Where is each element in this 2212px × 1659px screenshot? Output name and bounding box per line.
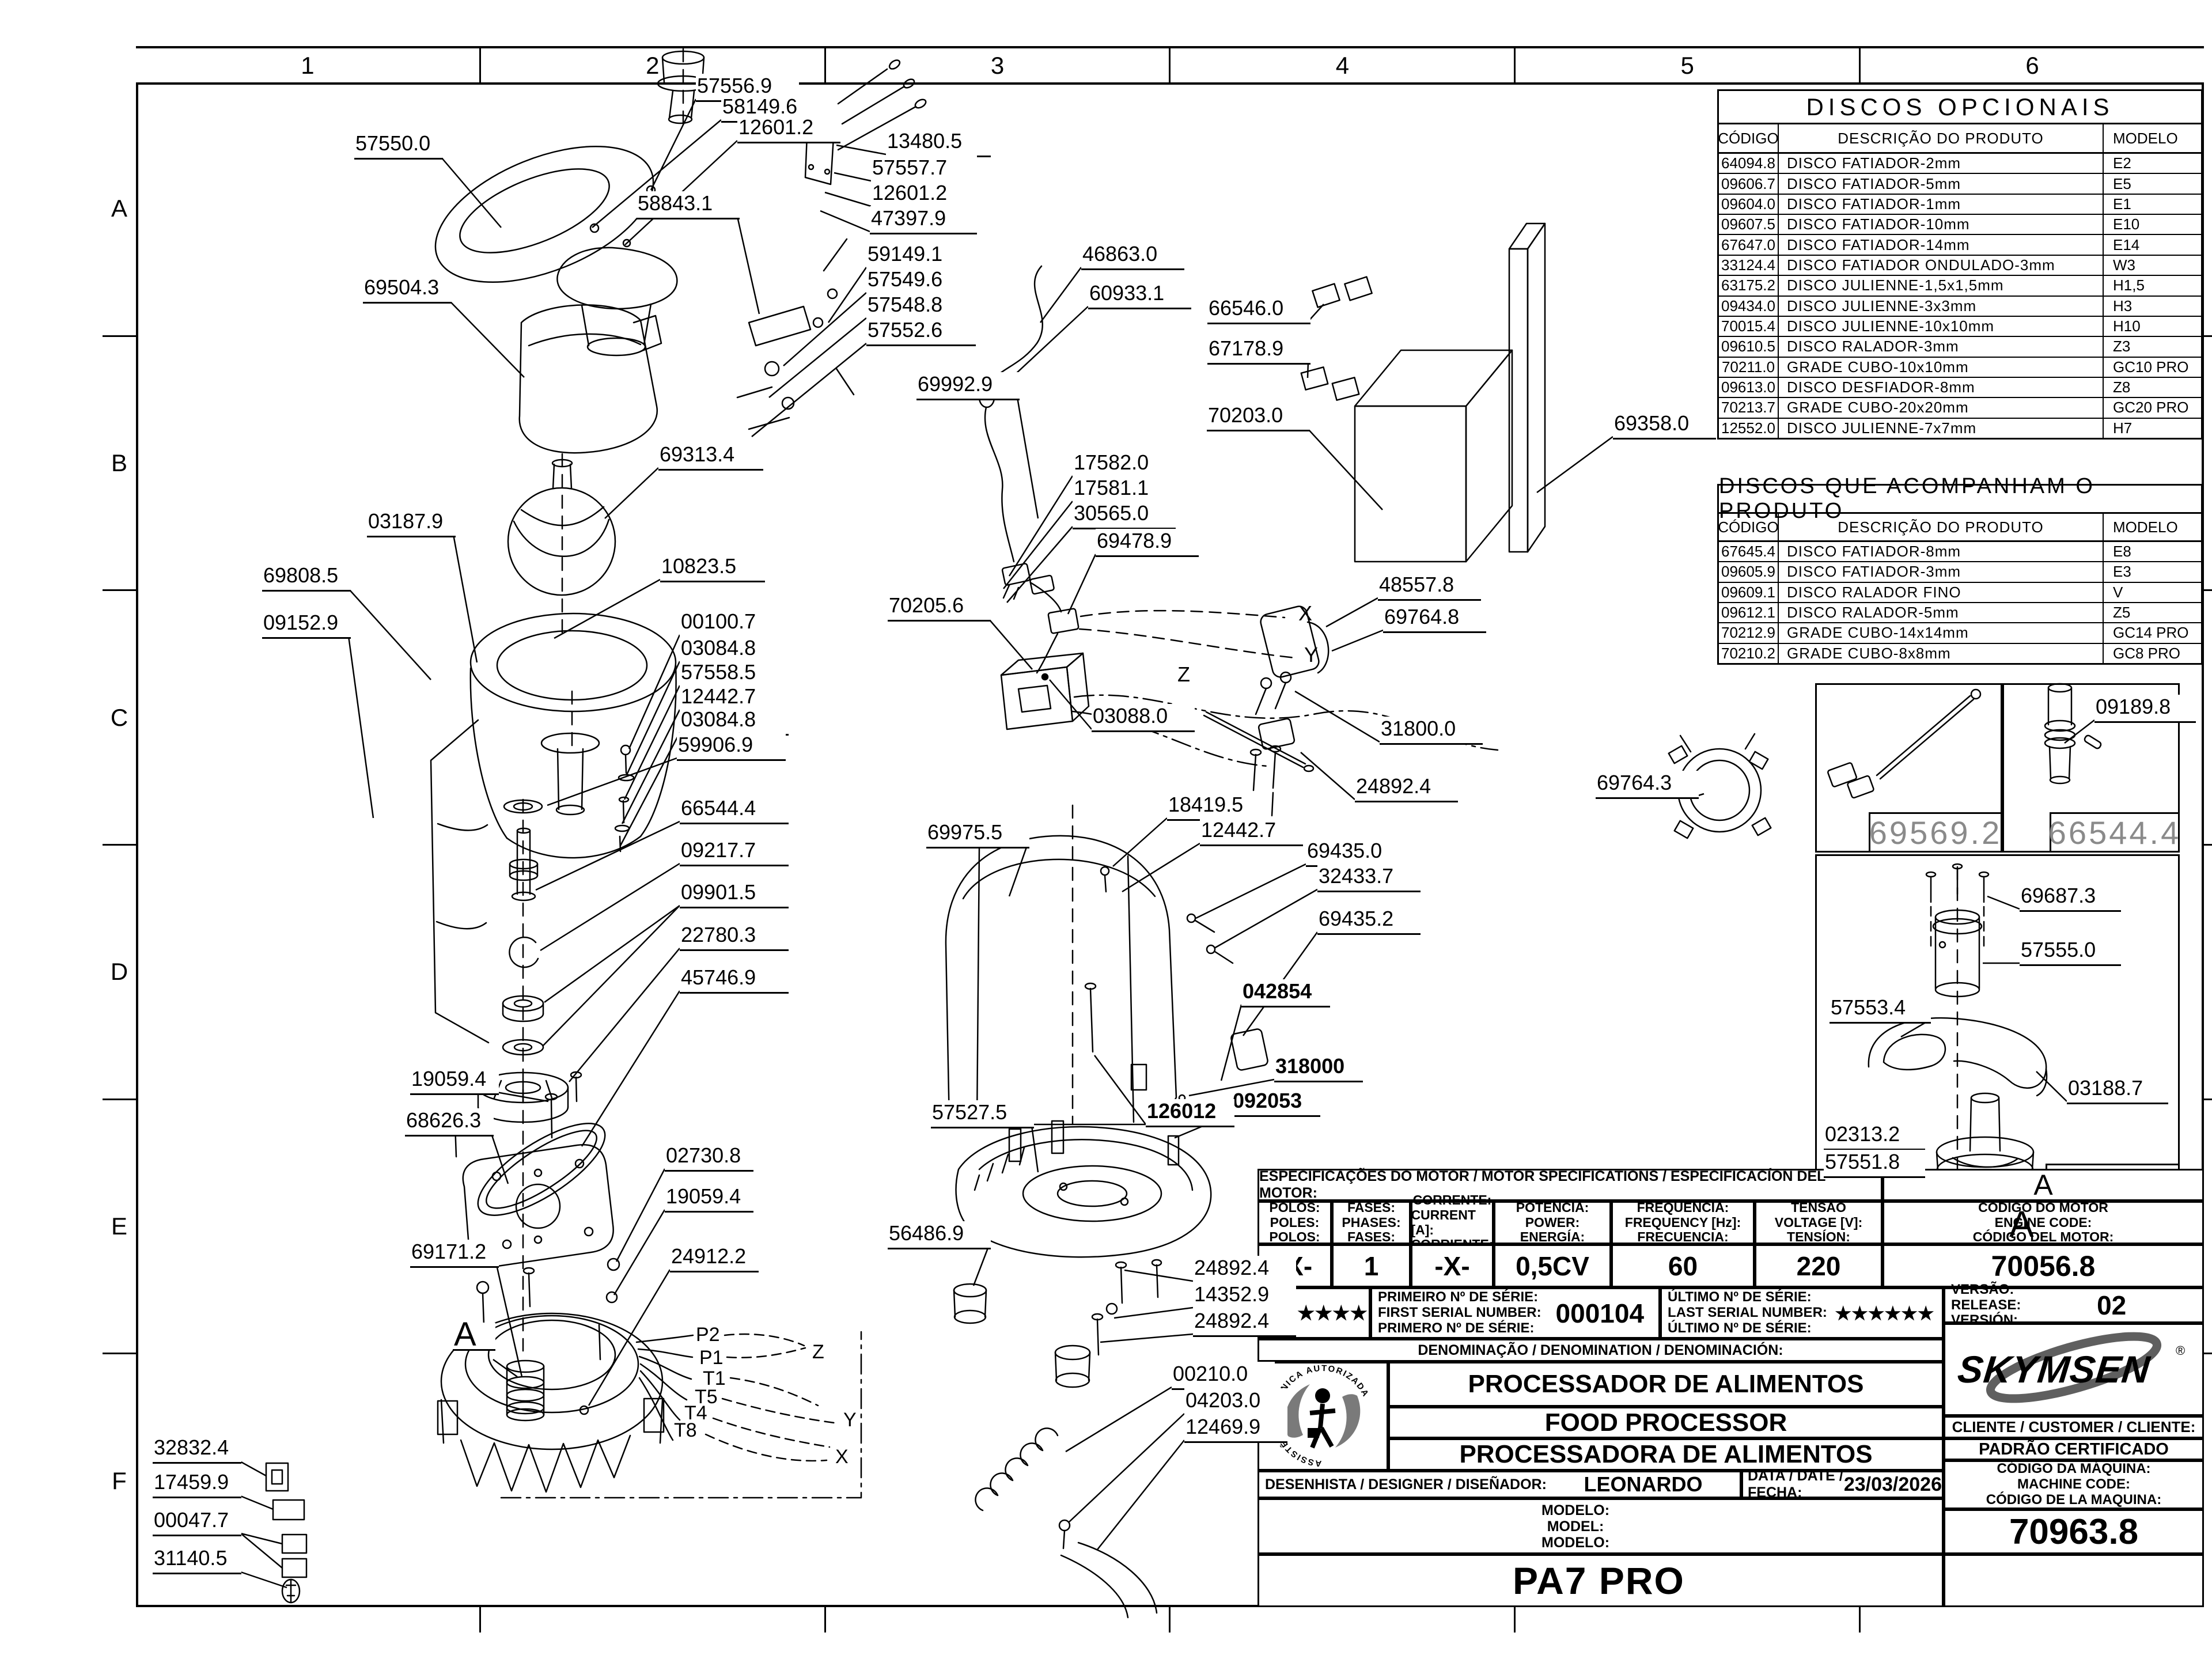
cell-modelo: E8 (2104, 542, 2201, 561)
zone-column-label: 4 (1171, 48, 1516, 82)
cell-modelo: GC14 PRO (2104, 623, 2201, 642)
included-discs-header: CÓDIGO DESCRIÇÃO DO PRODUTO MODELO (1719, 514, 2201, 542)
denomination-es: PROCESSADORA DE ALIMENTOS (1388, 1438, 1944, 1471)
cell-codigo: 09606.7 (1719, 174, 1779, 193)
table-row: 63175.2 DISCO JULIENNE-1,5x1,5mm H1,5 (1719, 276, 2201, 296)
designer-cell: DESENHISTA / DESIGNER / DISEÑADOR: LEONA… (1257, 1471, 1741, 1498)
ra-cell: R.A.: A.R.: R.A.: ★★★★ (1257, 1287, 1370, 1339)
zone-bottom-tick (1861, 1607, 2204, 1633)
label-line: POLOS: (1269, 1230, 1320, 1245)
cell-codigo: 70210.2 (1719, 644, 1779, 663)
cell-descricao: DISCO RALADOR-5mm (1779, 603, 2104, 622)
zone-row-label: C (103, 591, 136, 846)
spec-column-value: 220 (1755, 1244, 1883, 1287)
cell-codigo: 09609.1 (1719, 583, 1779, 602)
cell-modelo: V (2104, 583, 2201, 602)
table-row: 09604.0 DISCO FATIADOR-1mm E1 (1719, 195, 2201, 215)
cell-modelo: H3 (2104, 297, 2201, 316)
cell-modelo: E5 (2104, 174, 2201, 193)
table-row: 09609.1 DISCO RALADOR FINO V (1719, 583, 2201, 603)
label-line: FIRST SERIAL NUMBER: (1378, 1305, 1541, 1321)
cell-descricao: DISCO JULIENNE-1,5x1,5mm (1779, 276, 2104, 295)
zone-right-tick (2204, 1354, 2212, 1607)
date-value: 23/03/2026 (1844, 1474, 1942, 1496)
version-labels: VERSÃO: RELEASE: VERSIÓN: (1945, 1282, 2021, 1329)
version-cell: VERSÃO: RELEASE: VERSIÓN: 02 (1944, 1287, 2204, 1323)
table-row: 70213.7 GRADE CUBO-20x20mm GC20 PRO (1719, 398, 2201, 418)
first-serial-labels: PRIMEIRO Nº DE SÉRIE: FIRST SERIAL NUMBE… (1372, 1290, 1541, 1336)
label-line: CÓDIGO DO MOTOR (1978, 1200, 2108, 1215)
customer-label: CLIENTE / CUSTOMER / CLIENTE: (1944, 1416, 2204, 1438)
cell-modelo: W3 (2104, 256, 2201, 275)
designer-label: DESENHISTA / DESIGNER / DISEÑADOR: (1259, 1476, 1547, 1493)
designer-value: LEONARDO (1547, 1472, 1740, 1497)
machine-code-labels-cell: CÓDIGO DA MÁQUINA: MACHINE CODE: CÓDIGO … (1944, 1460, 2204, 1509)
zone-right-tick (2204, 337, 2212, 592)
label-line: R.A.: (1264, 1290, 1296, 1305)
cell-descricao: DISCO JULIENNE-7x7mm (1779, 419, 2104, 438)
label-line: VOLTAGE [V]: (1775, 1215, 1862, 1230)
zone-row-label: A (103, 82, 136, 337)
last-serial-cell: ÚLTIMO Nº DE SÉRIE: LAST SERIAL NUMBER: … (1660, 1287, 1944, 1339)
inset-box-shaft: 66544.4 (2002, 683, 2180, 853)
label-line: CORRENTE: (1413, 1193, 1492, 1208)
zone-bottom-tick (136, 1607, 481, 1633)
cell-descricao: DISCO FATIADOR-5mm (1779, 174, 2104, 193)
label-line: MODELO: (1541, 1535, 1609, 1551)
model-value: PA7 PRO (1257, 1554, 1944, 1607)
spec-column-value: 1 (1332, 1244, 1411, 1287)
spec-column-labels: FASES:PHASES:FASES: (1332, 1201, 1411, 1244)
cell-descricao: DISCO FATIADOR-10mm (1779, 215, 2104, 234)
cell-modelo: E1 (2104, 195, 2201, 214)
column-header-codigo: CÓDIGO (1719, 514, 1779, 540)
spec-column-value: -X- (1257, 1244, 1332, 1287)
motor-code-value: 70056.8 (1883, 1244, 2204, 1287)
cell-descricao: DISCO FATIADOR-8mm (1779, 542, 2104, 561)
label-line: POTÊNCIA: (1516, 1200, 1589, 1215)
zone-right-tick (2204, 591, 2212, 846)
optional-discs-title: DISCOS OPCIONAIS (1719, 91, 2201, 124)
spec-column-value: -X- (1411, 1244, 1494, 1287)
zone-row-label: F (103, 1354, 136, 1607)
drawing-sheet: 123456 ABCDEF DISCOS OPCIONAIS CÓDIGO DE… (0, 0, 2212, 1659)
brand-logo-cell: SKYMSEN ® (1944, 1323, 2204, 1416)
label-line: TENSÍON: (1787, 1230, 1850, 1245)
cell-descricao: DISCO RALADOR-3mm (1779, 337, 2104, 356)
cell-modelo: GC10 PRO (2104, 358, 2201, 377)
label-line: LAST SERIAL NUMBER: (1668, 1305, 1827, 1321)
label-line: FASES: (1347, 1230, 1395, 1245)
first-serial-value: 000104 (1541, 1298, 1658, 1329)
cell-descricao: DISCO DESFIADOR-8mm (1779, 378, 2104, 397)
cell-descricao: GRADE CUBO-10x10mm (1779, 358, 2104, 377)
zone-row-band: ABCDEF (103, 82, 136, 1607)
cell-codigo: 09434.0 (1719, 297, 1779, 316)
label-line: R.A.: (1264, 1321, 1296, 1336)
zone-right-tick (2204, 846, 2212, 1100)
certified-standard: PADRÃO CERTIFICADO (1944, 1438, 2204, 1460)
cell-modelo: Z3 (2104, 337, 2201, 356)
authorized-service-logo-cell: ASSISTÊNCIA TÉCNICA AUTORIZADA (1257, 1362, 1388, 1471)
table-row: 09605.9 DISCO FATIADOR-3mm E3 (1719, 562, 2201, 582)
cell-codigo: 09612.1 (1719, 603, 1779, 622)
cell-modelo: Z5 (2104, 603, 2201, 622)
table-row: 09610.5 DISCO RALADOR-3mm Z3 (1719, 337, 2201, 357)
cell-descricao: DISCO FATIADOR-3mm (1779, 562, 2104, 581)
inset-part-number: 66544.4 (2050, 812, 2180, 853)
column-header-codigo: CÓDIGO (1719, 124, 1779, 152)
cell-modelo: H1,5 (2104, 276, 2201, 295)
last-serial-value: ★★★★★★ (1827, 1302, 1942, 1324)
column-header-modelo: MODELO (2104, 124, 2201, 152)
zone-bottom-ticks (136, 1607, 2204, 1633)
cell-codigo: 33124.4 (1719, 256, 1779, 275)
cell-descricao: GRADE CUBO-14x14mm (1779, 623, 2104, 642)
table-row: 09606.7 DISCO FATIADOR-5mm E5 (1719, 174, 2201, 194)
logo-figure-case (1308, 1428, 1319, 1438)
label-line: FREQUENCY [Hz]: (1625, 1215, 1741, 1230)
table-row: 67647.0 DISCO FATIADOR-14mm E14 (1719, 235, 2201, 255)
label-line: MODEL: (1547, 1518, 1604, 1535)
date-label: DATA / DATE / FECHA: (1743, 1468, 1844, 1501)
label-line: A.R.: (1264, 1305, 1296, 1321)
table-row: 67645.4 DISCO FATIADOR-8mm E8 (1719, 542, 2201, 562)
cell-codigo: 12552.0 (1719, 419, 1779, 438)
table-row: 09613.0 DISCO DESFIADOR-8mm Z8 (1719, 378, 2201, 398)
ra-value: ★★★★ (1296, 1302, 1369, 1325)
cell-modelo: GC20 PRO (2104, 398, 2201, 417)
label-line: FASES: (1347, 1200, 1395, 1215)
empty-cell (1944, 1554, 2204, 1607)
label-line: ÚLTIMO Nº DE SÉRIE: (1668, 1321, 1812, 1336)
skymsen-logo: SKYMSEN ® (1945, 1325, 2202, 1414)
cell-codigo: 67647.0 (1719, 235, 1779, 254)
cell-codigo: 09607.5 (1719, 215, 1779, 234)
authorized-service-logo: ASSISTÊNCIA TÉCNICA AUTORIZADA (1259, 1363, 1387, 1469)
cell-codigo: 64094.8 (1719, 154, 1779, 173)
logo-swoosh-right (1335, 1394, 1360, 1448)
included-discs-table: DISCOS QUE ACOMPANHAM O PRODUTO CÓDIGO D… (1717, 484, 2203, 665)
motor-code-cell: CÓDIGO DO MOTOR ENGINE CODE: CÓDIGO DEL … (1883, 1201, 2204, 1244)
label-line: POLES: (1270, 1215, 1320, 1230)
cell-codigo: 70212.9 (1719, 623, 1779, 642)
denomination-header: DENOMINAÇÃO / DENOMINATION / DENOMINACIÓ… (1257, 1339, 1944, 1362)
cell-codigo: 09613.0 (1719, 378, 1779, 397)
cell-descricao: DISCO FATIADOR-14mm (1779, 235, 2104, 254)
ra-labels: R.A.: A.R.: R.A.: (1259, 1290, 1296, 1336)
cell-modelo: GC8 PRO (2104, 644, 2201, 663)
inset-box-pusher: 57550.0 (1815, 854, 2180, 1207)
zone-column-label: 1 (136, 48, 481, 82)
zone-column-label: 6 (1861, 48, 2204, 82)
cell-codigo: 09604.0 (1719, 195, 1779, 214)
cell-codigo: 70015.4 (1719, 317, 1779, 336)
zone-bottom-tick (481, 1607, 826, 1633)
column-header-modelo: MODELO (2104, 514, 2201, 540)
label-line: PRIMERO Nº DE SÉRIE: (1378, 1321, 1534, 1336)
label-line: VERSÃO: (1951, 1282, 2014, 1298)
label-line: RELEASE: (1951, 1298, 2021, 1313)
column-header-descricao: DESCRIÇÃO DO PRODUTO (1779, 514, 2104, 540)
cell-modelo: E10 (2104, 215, 2201, 234)
label-line: MACHINE CODE: (2017, 1477, 2130, 1493)
spec-column-labels: TENSÃOVOLTAGE [V]:TENSÍON: (1755, 1201, 1883, 1244)
column-header-descricao: DESCRIÇÃO DO PRODUTO (1779, 124, 2104, 152)
motor-spec-header: ESPECIFICAÇÕES DO MOTOR / MOTOR SPECIFIC… (1257, 1169, 1883, 1201)
cell-modelo: H10 (2104, 317, 2201, 336)
revision-letter: A (1883, 1169, 2204, 1201)
optional-discs-table: DISCOS OPCIONAIS CÓDIGO DESCRIÇÃO DO PRO… (1717, 89, 2203, 440)
cell-descricao: GRADE CUBO-8x8mm (1779, 644, 2104, 663)
label-line: MODELO: (1541, 1502, 1609, 1518)
cell-descricao: DISCO FATIADOR ONDULADO-3mm (1779, 256, 2104, 275)
label-line: ÚLTIMO Nº DE SÉRIE: (1668, 1290, 1812, 1305)
last-serial-labels: ÚLTIMO Nº DE SÉRIE: LAST SERIAL NUMBER: … (1662, 1290, 1827, 1336)
machine-code-value: 70963.8 (1944, 1509, 2204, 1554)
cell-descricao: GRADE CUBO-20x20mm (1779, 398, 2104, 417)
model-labels: MODELO: MODEL: MODELO: (1259, 1502, 1609, 1551)
denomination-pt: PROCESSADOR DE ALIMENTOS (1388, 1362, 1944, 1407)
table-row: 12552.0 DISCO JULIENNE-7x7mm H7 (1719, 419, 2201, 438)
spec-column-labels: POTÊNCIA:POWER:ENERGÍA: (1494, 1201, 1611, 1244)
cell-codigo: 09605.9 (1719, 562, 1779, 581)
cell-modelo: E3 (2104, 562, 2201, 581)
denomination-en: FOOD PROCESSOR (1388, 1407, 1944, 1438)
machine-code-labels: CÓDIGO DA MÁQUINA: MACHINE CODE: CÓDIGO … (1986, 1461, 2161, 1508)
motor-code-labels: CÓDIGO DO MOTOR ENGINE CODE: CÓDIGO DEL … (1973, 1200, 2114, 1245)
label-line: CÓDIGO DEL MOTOR: (1973, 1230, 2114, 1245)
zone-bottom-tick (1171, 1607, 1516, 1633)
zone-row-label: B (103, 337, 136, 592)
inset-box-thermostat: 69569.2 (1815, 683, 2002, 853)
registered-mark: ® (2176, 1343, 2185, 1358)
spec-column-labels: CORRENTE:CURRENT [A]:CORRIENTE: (1411, 1201, 1494, 1244)
label-line: CÓDIGO DE LA MAQUINA: (1986, 1493, 2161, 1508)
zone-right-ticks (2204, 82, 2212, 1607)
spec-column-labels: FREQUÊNCIA:FREQUENCY [Hz]:FRECUENCIA: (1611, 1201, 1755, 1244)
table-row: 70015.4 DISCO JULIENNE-10x10mm H10 (1719, 317, 2201, 337)
table-row: 33124.4 DISCO FATIADOR ONDULADO-3mm W3 (1719, 256, 2201, 276)
logo-figure-head (1315, 1388, 1330, 1403)
table-row: 70211.0 GRADE CUBO-10x10mm GC10 PRO (1719, 358, 2201, 378)
spec-column-value: 60 (1611, 1244, 1755, 1287)
cell-modelo: H7 (2104, 419, 2201, 438)
zone-row-label: D (103, 846, 136, 1100)
zone-column-label: 3 (826, 48, 1171, 82)
cell-codigo: 09610.5 (1719, 337, 1779, 356)
table-row: 09612.1 DISCO RALADOR-5mm Z5 (1719, 603, 2201, 623)
cell-modelo: Z8 (2104, 378, 2201, 397)
optional-discs-header: CÓDIGO DESCRIÇÃO DO PRODUTO MODELO (1719, 124, 2201, 154)
zone-right-tick (2204, 1100, 2212, 1355)
zone-column-label: 5 (1516, 48, 1861, 82)
logo-swoosh-left (1285, 1384, 1310, 1438)
model-labels-cell: MODELO: MODEL: MODELO: (1257, 1498, 1944, 1554)
cell-descricao: DISCO JULIENNE-10x10mm (1779, 317, 2104, 336)
table-row: 70210.2 GRADE CUBO-8x8mm GC8 PRO (1719, 644, 2201, 663)
first-serial-cell: PRIMEIRO Nº DE SÉRIE: FIRST SERIAL NUMBE… (1370, 1287, 1660, 1339)
label-line: PÓLOS: (1269, 1200, 1320, 1215)
cell-descricao: DISCO FATIADOR-1mm (1779, 195, 2104, 214)
brand-name: SKYMSEN (1956, 1349, 2152, 1391)
label-line: ENGINE CODE: (1995, 1215, 2092, 1230)
spec-column-value: 0,5CV (1494, 1244, 1611, 1287)
table-row: 09607.5 DISCO FATIADOR-10mm E10 (1719, 215, 2201, 235)
cell-codigo: 70211.0 (1719, 358, 1779, 377)
included-discs-title: DISCOS QUE ACOMPANHAM O PRODUTO (1719, 486, 2201, 514)
zone-bottom-tick (826, 1607, 1171, 1633)
label-line: CÓDIGO DA MÁQUINA: (1997, 1461, 2150, 1477)
spec-column-labels: PÓLOS:POLES:POLOS: (1257, 1201, 1332, 1244)
cell-modelo: E14 (2104, 235, 2201, 254)
logo-figure-body (1310, 1404, 1335, 1448)
cell-codigo: 70213.7 (1719, 398, 1779, 417)
zone-column-band: 123456 (136, 46, 2204, 82)
zone-column-label: 2 (481, 48, 826, 82)
cell-descricao: DISCO RALADOR FINO (1779, 583, 2104, 602)
label-line: TENSÃO (1791, 1200, 1846, 1215)
table-row: 64094.8 DISCO FATIADOR-2mm E2 (1719, 154, 2201, 174)
table-row: 09434.0 DISCO JULIENNE-3x3mm H3 (1719, 297, 2201, 317)
zone-row-label: E (103, 1100, 136, 1355)
label-line: CURRENT [A]: (1411, 1208, 1493, 1238)
cell-modelo: E2 (2104, 154, 2201, 173)
cell-descricao: DISCO JULIENNE-3x3mm (1779, 297, 2104, 316)
label-line: FREQUÊNCIA: (1637, 1200, 1729, 1215)
label-line: ENERGÍA: (1520, 1230, 1585, 1245)
label-line: POWER: (1525, 1215, 1580, 1230)
label-line: PRIMEIRO Nº DE SÉRIE: (1378, 1290, 1538, 1305)
zone-bottom-tick (1516, 1607, 1861, 1633)
date-cell: DATA / DATE / FECHA: 23/03/2026 (1741, 1471, 1944, 1498)
cell-codigo: 63175.2 (1719, 276, 1779, 295)
title-block: ESPECIFICAÇÕES DO MOTOR / MOTOR SPECIFIC… (1257, 1169, 2204, 1607)
table-row: 70212.9 GRADE CUBO-14x14mm GC14 PRO (1719, 623, 2201, 643)
cell-codigo: 67645.4 (1719, 542, 1779, 561)
inset-part-number: 69569.2 (1869, 812, 2002, 853)
label-line: FRECUENCIA: (1637, 1230, 1728, 1245)
version-value: 02 (2021, 1290, 2202, 1321)
cell-descricao: DISCO FATIADOR-2mm (1779, 154, 2104, 173)
label-line: PHASES: (1342, 1215, 1400, 1230)
zone-right-tick (2204, 82, 2212, 337)
